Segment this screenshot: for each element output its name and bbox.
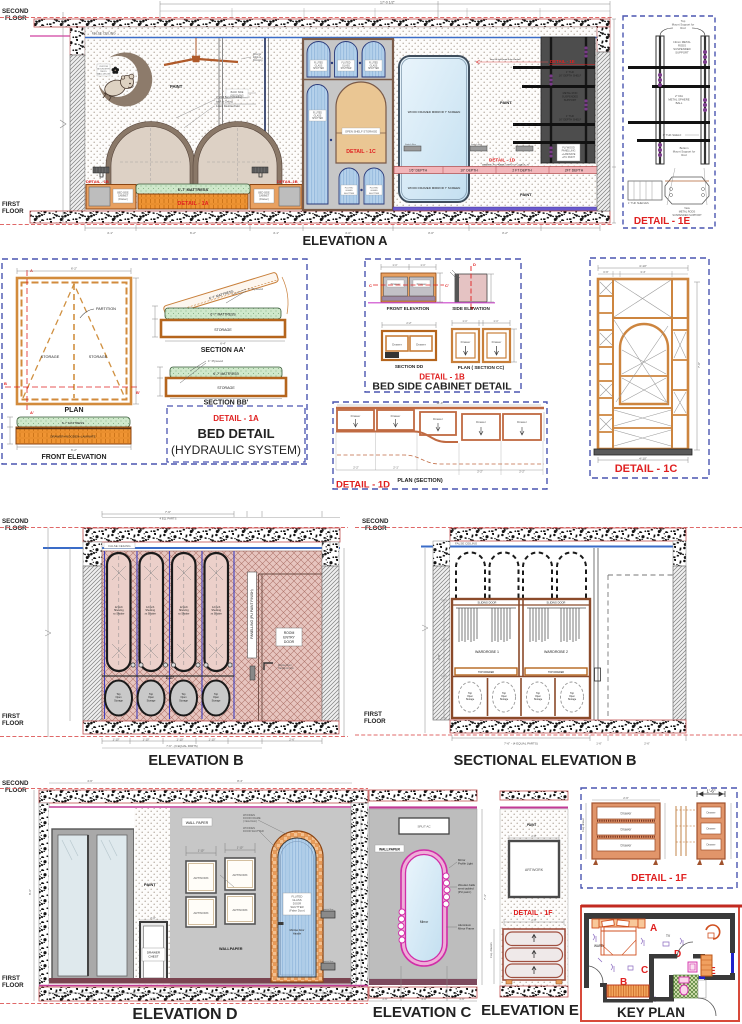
svg-text:SHUTTER: SHUTTER (344, 193, 355, 195)
svg-text:1" THK SHELVES: 1" THK SHELVES (628, 201, 649, 205)
svg-text:ELEVATION E: ELEVATION E (481, 1002, 579, 1019)
svg-text:Storage: Storage (147, 699, 156, 702)
svg-text:7'-6" - (4 EQUAL PARTS): 7'-6" - (4 EQUAL PARTS) (504, 742, 538, 746)
svg-text:Switch Box: Switch Box (323, 908, 335, 911)
svg-text:( New Door): ( New Door) (243, 819, 257, 823)
svg-text:DETAIL - 1F: DETAIL - 1F (513, 910, 553, 917)
svg-text:6'-2": 6'-2" (71, 448, 77, 452)
svg-text:METAL RODS: METAL RODS (679, 210, 696, 214)
svg-text:DETAIL - 1F: DETAIL - 1F (631, 873, 687, 884)
svg-text:Drawer: Drawer (492, 340, 502, 344)
svg-text:16" DEPTH SHELF: 16" DEPTH SHELF (559, 118, 582, 122)
svg-text:6'-2": 6'-2" (71, 267, 77, 271)
svg-text:FLOOR: FLOOR (5, 15, 27, 22)
svg-text:ELEVATION A: ELEVATION A (303, 233, 389, 248)
svg-text:xx Shutter: xx Shutter (145, 612, 156, 615)
svg-text:PAINT: PAINT (527, 823, 536, 827)
svg-text:(False Door): (False Door) (289, 909, 305, 913)
svg-text:ROOM: ROOM (284, 631, 295, 635)
svg-text:DETAIL - 1C: DETAIL - 1C (346, 149, 376, 155)
svg-text:(Drawer): (Drawer) (259, 198, 269, 201)
svg-text:Storage: Storage (568, 698, 577, 701)
svg-text:ARTWORK: ARTWORK (525, 868, 544, 872)
svg-text:SECOND: SECOND (2, 8, 29, 15)
svg-text:FALSE CEILING: FALSE CEILING (455, 542, 478, 546)
svg-text:1'-10": 1'-10" (142, 738, 149, 742)
svg-text:5'-5": 5'-5" (217, 997, 223, 1001)
svg-text:WOOD FRAMED MIRROR 7' SCREEN: WOOD FRAMED MIRROR 7' SCREEN (408, 110, 461, 114)
svg-text:FALSE CEILING: FALSE CEILING (92, 32, 116, 36)
svg-text:4'-10": 4'-10" (639, 457, 647, 461)
svg-text:SLIDING DOOR: SLIDING DOOR (478, 601, 497, 605)
svg-text:3'-2": 3'-2" (502, 231, 508, 235)
svg-text:View: View (684, 206, 690, 210)
svg-text:2'-6": 2'-6" (531, 918, 536, 922)
svg-text:2'-10": 2'-10" (293, 997, 300, 1001)
svg-text:ELEVATION D: ELEVATION D (132, 1006, 237, 1023)
svg-text:DETAIL - 1A: DETAIL - 1A (177, 201, 208, 207)
svg-text:SHUTTER: SHUTTER (312, 118, 323, 120)
svg-text:0'-6": 0'-6" (603, 270, 608, 274)
svg-text:DETAIL - 1D: DETAIL - 1D (489, 158, 516, 163)
svg-text:Switch Box: Switch Box (405, 143, 417, 146)
svg-text:FLOOR: FLOOR (2, 982, 24, 989)
svg-text:GLASS: GLASS (370, 64, 378, 67)
svg-text:PAINT: PAINT (170, 84, 183, 89)
svg-text:FLUTED: FLUTED (345, 188, 354, 190)
svg-text:Rod: Rod (681, 153, 687, 157)
svg-text:2'-2": 2'-2" (477, 470, 483, 474)
svg-text:2'-2": 2'-2" (406, 321, 411, 325)
svg-text:(HYDRAULIC SYSTEM): (HYDRAULIC SYSTEM) (171, 443, 301, 457)
svg-text:17'-0 1/2": 17'-0 1/2" (380, 1, 396, 5)
svg-text:PAINT: PAINT (520, 192, 532, 197)
svg-text:SECOND: SECOND (362, 518, 389, 525)
svg-text:Storage: Storage (212, 699, 221, 702)
svg-text:SECOND: SECOND (2, 780, 29, 787)
svg-text:11'-0": 11'-0" (437, 401, 444, 405)
svg-text:FLUTED: FLUTED (370, 188, 379, 190)
svg-text:7'-3": 7'-3" (483, 894, 487, 900)
svg-text:STORAGE: STORAGE (89, 355, 108, 359)
svg-text:xx Shutter: xx Shutter (211, 612, 222, 615)
svg-text:wire for light point to be con: wire for light point to be confirm (490, 58, 521, 61)
svg-text:SHUTTER: SHUTTER (341, 68, 352, 70)
svg-text:GLASS: GLASS (314, 114, 322, 117)
svg-text:GLASS: GLASS (370, 189, 378, 192)
svg-text:SPLIT AC: SPLIT AC (417, 825, 431, 829)
svg-text:FIRST: FIRST (2, 713, 20, 720)
svg-text:+PU PAINT: +PU PAINT (562, 156, 575, 159)
svg-text:4'-0": 4'-0" (421, 997, 427, 1001)
svg-text:1'6" DEPTH: 1'6" DEPTH (409, 169, 428, 173)
svg-text:SIDE ELEVATION: SIDE ELEVATION (452, 306, 490, 311)
svg-text:(PU paint ): (PU paint ) (458, 890, 471, 894)
svg-text:Mirror: Mirror (420, 920, 429, 924)
svg-text:2" Wall Band Moulding: 2" Wall Band Moulding (216, 95, 243, 99)
svg-text:STORAGE: STORAGE (214, 328, 232, 332)
svg-text:DOOR: DOOR (284, 640, 295, 644)
svg-text:1'-1": 1'-1" (462, 319, 467, 323)
svg-text:2'-6": 2'-6" (644, 742, 650, 746)
svg-text:TOP DRAWER: TOP DRAWER (478, 671, 494, 674)
svg-text:SECTIONAL ELEVATION B: SECTIONAL ELEVATION B (454, 753, 637, 769)
svg-text:STORAGE: STORAGE (217, 386, 235, 390)
svg-text:FLUTED: FLUTED (342, 63, 351, 65)
svg-text:Drawer: Drawer (706, 811, 715, 815)
svg-text:Storage: Storage (466, 698, 475, 701)
svg-text:1'-1": 1'-1" (392, 263, 397, 267)
svg-text:Dimming: Dimming (253, 59, 263, 62)
svg-text:1" THK: 1" THK (566, 114, 574, 118)
svg-text:ARTWORK: ARTWORK (193, 876, 208, 880)
svg-text:Drawer: Drawer (351, 414, 361, 418)
svg-text:WALL PAPER: WALL PAPER (186, 821, 209, 825)
svg-text:16" DEPTH SHELF: 16" DEPTH SHELF (559, 74, 582, 78)
svg-text:BED DETAIL: BED DETAIL (197, 426, 274, 441)
svg-text:FIRST: FIRST (364, 711, 382, 718)
svg-text:Profile Light: Profile Light (458, 861, 473, 865)
svg-text:4'-10": 4'-10" (639, 264, 647, 268)
svg-text:A': A' (30, 410, 34, 415)
svg-text:FLOOR: FLOOR (365, 525, 387, 532)
svg-text:2 FT DEPTH: 2 FT DEPTH (512, 169, 532, 173)
svg-text:B': B' (136, 390, 140, 395)
svg-text:GLASS: GLASS (345, 189, 353, 192)
svg-text:7'-6" - (6 EQUAL PARTS): 7'-6" - (6 EQUAL PARTS) (166, 744, 198, 748)
svg-text:2'-1": 2'-1" (393, 466, 399, 470)
svg-text:SECTION DD: SECTION DD (395, 364, 424, 369)
svg-text:FIRST: FIRST (2, 201, 20, 208)
svg-text:DOOR SHUTTER: DOOR SHUTTER (243, 829, 264, 833)
svg-text:1" Plywood: 1" Plywood (208, 359, 223, 363)
svg-text:6'-7' MATTRESS: 6'-7' MATTRESS (62, 421, 84, 425)
svg-text:CHEST: CHEST (148, 955, 158, 959)
svg-text:2'-2": 2'-2" (519, 470, 525, 474)
svg-text:3'-0": 3'-0" (428, 231, 434, 235)
svg-text:BALL: BALL (676, 101, 683, 105)
svg-text:Drawer: Drawer (461, 340, 471, 344)
svg-text:Drawer: Drawer (476, 420, 486, 424)
svg-text:4'-6": 4'-6" (88, 997, 94, 1001)
svg-text:SUSPENDED: SUSPENDED (562, 95, 578, 99)
svg-text:A: A (650, 923, 657, 934)
svg-text:DETAIL - 1D: DETAIL - 1D (336, 480, 390, 491)
svg-text:2'-6": 2'-6" (623, 796, 629, 800)
svg-text:WALL DECOR: WALL DECOR (97, 73, 111, 76)
svg-text:Storage: Storage (179, 699, 188, 702)
svg-text:1'-1": 1'-1" (420, 263, 425, 267)
svg-text:GLASS: GLASS (342, 64, 350, 67)
svg-text:C: C (369, 283, 372, 288)
svg-text:WOOD FRAMED MIRROR 7' SCREEN: WOOD FRAMED MIRROR 7' SCREEN (408, 186, 461, 190)
svg-text:6'-4": 6'-4" (220, 342, 226, 346)
svg-text:Mortise Door: Mortise Door (290, 928, 305, 932)
svg-text:DETAIL - 1C: DETAIL - 1C (615, 463, 678, 475)
svg-text:SUPPORT: SUPPORT (675, 51, 689, 55)
svg-text:Storage: Storage (534, 698, 543, 701)
svg-text:6'-7' MATTRESS: 6'-7' MATTRESS (213, 372, 239, 376)
svg-text:back lit Ceiling: back lit Ceiling (216, 100, 233, 104)
svg-text:PAINT: PAINT (500, 100, 512, 105)
svg-text:PLAN: PLAN (64, 407, 83, 414)
svg-text:8'-4": 8'-4" (237, 779, 243, 783)
svg-text:12mm Double+Paint: 12mm Double+Paint (216, 104, 240, 108)
svg-text:3'-4": 3'-4" (640, 270, 645, 274)
svg-text:PANELLING (PU PAINT FINISH): PANELLING (PU PAINT FINISH) (250, 589, 254, 638)
svg-text:7'-6": 7'-6" (165, 510, 171, 514)
svg-text:4'-1": 4'-1" (273, 231, 279, 235)
svg-text:2'-0": 2'-0" (531, 834, 536, 838)
svg-text:2FT DEPTH: 2FT DEPTH (565, 169, 584, 173)
svg-text:FALSE CEILING: FALSE CEILING (108, 544, 131, 548)
svg-text:2'-2": 2'-2" (353, 466, 359, 470)
svg-text:FLUTED: FLUTED (314, 63, 323, 65)
svg-text:1'-6": 1'-6" (707, 789, 716, 794)
svg-text:FLUTED: FLUTED (313, 113, 322, 115)
svg-text:BED SIDE CABINET DETAIL: BED SIDE CABINET DETAIL (372, 381, 512, 393)
svg-text:FLOOR: FLOOR (2, 720, 24, 727)
svg-text:WARD: WARD (594, 944, 604, 948)
svg-text:7'-0": 7'-0" (697, 362, 701, 368)
svg-text:Storage: Storage (500, 698, 509, 701)
svg-text:WALLPAPER: WALLPAPER (219, 947, 243, 951)
svg-text:METAL ROD: METAL ROD (563, 91, 578, 95)
svg-text:1'-1": 1'-1" (493, 319, 498, 323)
svg-text:Drawer: Drawer (416, 343, 426, 347)
svg-text:SHUTTER: SHUTTER (368, 68, 379, 70)
svg-text:ARTWORK: ARTWORK (232, 908, 247, 912)
svg-text:4'-6": 4'-6" (87, 779, 93, 783)
svg-text:Drawer: Drawer (391, 414, 401, 418)
svg-text:DETAIL-1B: DETAIL-1B (277, 179, 298, 184)
svg-text:DRAWER+PU FRAME+OPEN TOP+LAACK: DRAWER+PU FRAME+OPEN TOP+LAACK+TV (482, 164, 530, 167)
svg-text:2'-0": 2'-0" (149, 997, 155, 1001)
svg-text:PARTITION: PARTITION (96, 307, 116, 311)
svg-text:ARTWORK: ARTWORK (193, 911, 208, 915)
svg-text:Rod: Rod (680, 26, 686, 30)
svg-text:ENTRY: ENTRY (283, 636, 295, 640)
svg-text:Drawer: Drawer (517, 420, 527, 424)
svg-text:ARTWORK: ARTWORK (232, 873, 247, 877)
svg-text:1'-6": 1'-6" (459, 997, 465, 1001)
svg-text:SHUTTER: SHUTTER (313, 68, 324, 70)
svg-text:1'-10": 1'-10" (112, 738, 119, 742)
svg-text:Switch Box: Switch Box (471, 143, 483, 146)
svg-text:DRAWER+WOODEN+LAMINATE: DRAWER+WOODEN+LAMINATE (50, 435, 95, 439)
svg-text:3 eq. drawer: 3 eq. drawer (582, 818, 585, 832)
svg-text:FLOOR: FLOOR (364, 718, 386, 725)
svg-text:1" THK: 1" THK (566, 70, 574, 74)
svg-text:SLIDING DOOR: SLIDING DOOR (547, 601, 566, 605)
svg-text:6'-2": 6'-2" (190, 231, 196, 235)
svg-text:B: B (4, 381, 7, 386)
svg-text:Drawer: Drawer (621, 828, 633, 832)
svg-text:8'-6": 8'-6" (28, 889, 32, 895)
svg-text:4'-1": 4'-1" (107, 231, 113, 235)
svg-text:FLOOR: FLOOR (2, 208, 24, 215)
svg-text:C: C (641, 965, 648, 976)
svg-text:OPEN SHELF STORAGE: OPEN SHELF STORAGE (345, 130, 377, 134)
svg-text:FIRST: FIRST (2, 975, 20, 982)
svg-text:Drawer: Drawer (706, 827, 715, 831)
svg-text:FLUTED: FLUTED (369, 63, 378, 65)
svg-text:Storage: Storage (114, 699, 123, 702)
svg-text:xx Shutter: xx Shutter (113, 612, 124, 615)
svg-text:Mirror Frame: Mirror Frame (458, 926, 475, 930)
svg-text:Drawer: Drawer (392, 343, 402, 347)
svg-text:D: D (473, 262, 476, 267)
svg-text:DETAIL - 1B: DETAIL - 1B (86, 179, 109, 184)
svg-text:PAINT: PAINT (144, 882, 156, 887)
svg-text:Drawer: Drawer (706, 843, 715, 847)
svg-text:4 EQ. PARTS: 4 EQ. PARTS (160, 517, 177, 521)
svg-text:(Drawer): (Drawer) (118, 198, 128, 201)
svg-text:PLAN (SECTION): PLAN (SECTION) (397, 478, 443, 484)
svg-text:SHUTTER: SHUTTER (369, 193, 380, 195)
svg-text:1'-6": 1'-6" (382, 997, 388, 1001)
svg-text:1" THK SHELF: 1" THK SHELF (663, 133, 682, 137)
svg-text:1'-10": 1'-10" (237, 846, 244, 850)
svg-text:1'-10": 1'-10" (198, 849, 205, 853)
svg-text:Drawer: Drawer (433, 417, 443, 421)
svg-text:6'-7' MATTRESS: 6'-7' MATTRESS (210, 313, 236, 317)
svg-text:3 eq. drawers: 3 eq. drawers (489, 942, 493, 958)
svg-text:Handle: Handle (293, 932, 302, 936)
svg-text:ELEVATION C: ELEVATION C (373, 1004, 472, 1021)
svg-text:1'-10": 1'-10" (176, 738, 183, 742)
svg-text:SECTION AA': SECTION AA' (201, 347, 246, 354)
svg-text:GLASS: GLASS (315, 64, 323, 67)
svg-text:2'-6": 2'-6" (289, 738, 295, 742)
svg-text:xx Shutter: xx Shutter (178, 612, 189, 615)
svg-text:PLAN ( SECTION CC): PLAN ( SECTION CC) (458, 365, 505, 370)
svg-text:2'-0": 2'-0" (150, 916, 156, 920)
svg-text:DETAIL - 1A: DETAIL - 1A (213, 414, 259, 423)
svg-text:6'-8": 6'-8" (437, 654, 441, 660)
svg-text:1'-6": 1'-6" (596, 742, 602, 746)
svg-text:Handle & Lock: Handle & Lock (278, 667, 294, 670)
svg-text:Switch Box: Switch Box (323, 960, 335, 963)
svg-text:FRONT ELEVATION: FRONT ELEVATION (41, 454, 106, 461)
svg-text:WALLPAPER: WALLPAPER (379, 847, 401, 851)
svg-text:SECOND: SECOND (2, 518, 29, 525)
svg-text:SUPPORT: SUPPORT (564, 98, 577, 102)
svg-text:Drawer: Drawer (621, 812, 633, 816)
svg-text:1'-10": 1'-10" (208, 738, 215, 742)
svg-text:C': C' (445, 283, 449, 288)
svg-text:10" DEPTH: 10" DEPTH (460, 169, 478, 173)
svg-text:WARDROBE 2: WARDROBE 2 (544, 650, 568, 654)
svg-text:FLOOR: FLOOR (5, 525, 27, 532)
svg-text:KEY PLAN: KEY PLAN (617, 1005, 685, 1020)
svg-text:A: A (30, 268, 33, 273)
svg-text:Drawer: Drawer (621, 844, 633, 848)
svg-text:WARDROBE 1: WARDROBE 1 (475, 650, 499, 654)
svg-text:STORAGE: STORAGE (41, 355, 60, 359)
svg-text:1" Plywood: 1" Plywood (248, 287, 263, 291)
svg-text:DETAIL - 1E: DETAIL - 1E (550, 59, 575, 64)
svg-text:DETAIL - 1E: DETAIL - 1E (634, 216, 691, 227)
svg-text:ELEVATION B: ELEVATION B (148, 753, 243, 769)
svg-text:FRONT ELEVATION: FRONT ELEVATION (387, 306, 430, 311)
svg-text:6'-7' MATTRESS: 6'-7' MATTRESS (178, 187, 209, 192)
svg-text:TOP DRAWER: TOP DRAWER (548, 671, 564, 674)
